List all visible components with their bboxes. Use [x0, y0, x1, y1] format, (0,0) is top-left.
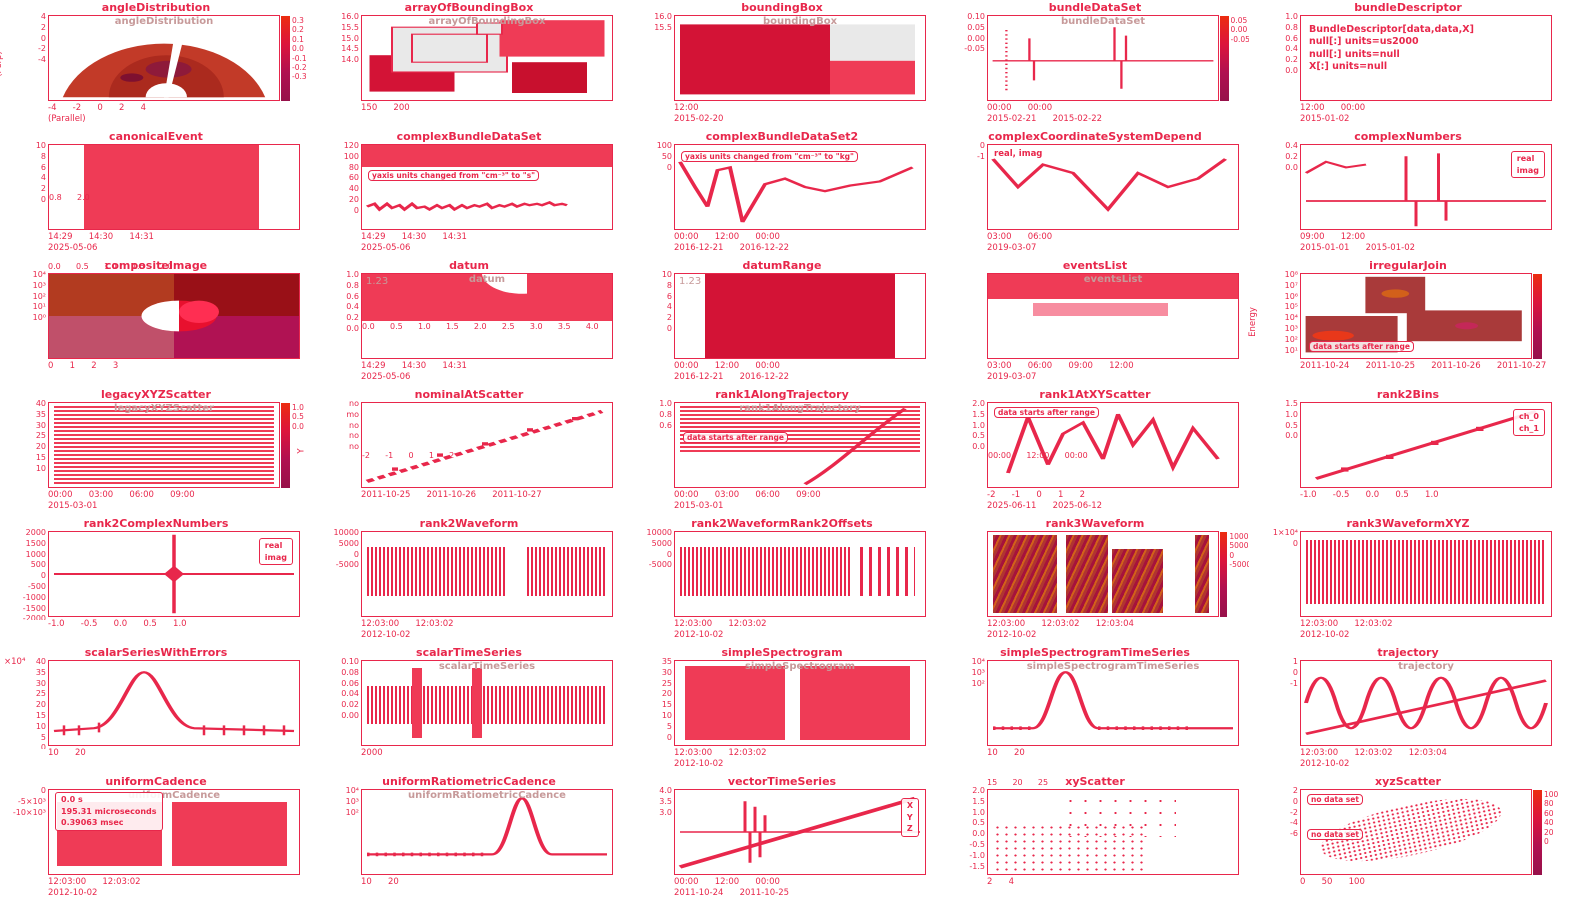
x-dates: 2012-10-02: [1300, 759, 1556, 769]
x-ticks: 10 20: [361, 877, 617, 887]
figure-bundleDataSet: bundleDataSet 0.10 0.05 0.00 -0.05 bundl…: [941, 2, 1249, 128]
figure-title: scalarSeriesWithErrors: [2, 646, 310, 659]
trajectory-curve: [675, 403, 925, 487]
figure-title: complexNumbers: [1254, 130, 1562, 143]
colorbar-gradient: [281, 403, 290, 488]
y-ticks: 120 100 80 60 40 20 0: [315, 141, 359, 233]
figure-title: simpleSpectrogram: [628, 646, 936, 659]
figure-title: boundingBox: [628, 1, 936, 14]
plot-area[interactable]: BundleDescriptor[data,data,X] null[:] un…: [1300, 15, 1552, 101]
figure-title: datumRange: [628, 259, 936, 272]
x-ticks: 14:29 14:30 14:31: [361, 361, 617, 371]
figure-title: xyzScatter: [1254, 775, 1562, 788]
x-dates: 2012-10-02: [1300, 630, 1556, 640]
plot-area[interactable]: [48, 273, 300, 359]
spectrogram-block-2: [800, 666, 910, 740]
y-ticks: 1 0 -1: [1254, 657, 1298, 749]
waveform-spectrogram-1: [993, 535, 1057, 612]
x-ticks: -1.0 -0.5 0.0 0.5 1.0: [48, 619, 304, 629]
x-dates: 2015-03-01: [674, 501, 930, 511]
ghost-title: simpleSpectrogramTimeSeries: [988, 661, 1238, 672]
x-ticks: 14:29 14:30 14:31: [361, 232, 617, 242]
ghost-title: bundleDataSet: [988, 16, 1218, 27]
plot-area[interactable]: data starts after range 00:00 12:00 00:0…: [987, 402, 1239, 488]
x-dates: 2015-01-01 2015-01-02: [1300, 243, 1556, 253]
datum-value: 1.23: [366, 276, 388, 287]
y-ticks: 0.10 0.08 0.06 0.04 0.02 0.00: [315, 657, 359, 749]
x-ticks: 03:00 06:00 09:00 12:00: [987, 361, 1243, 371]
figure-title: vectorTimeSeries: [628, 775, 936, 788]
x-ticks: -2 -1 0 1 2: [987, 490, 1243, 500]
plot-area[interactable]: real imag: [48, 531, 300, 617]
colorbar[interactable]: 0.05 0.00 -0.05: [1220, 16, 1249, 101]
y-ticks: 0.4 0.2 0.0: [1254, 141, 1298, 233]
figure-title: rank2WaveformRank2Offsets: [628, 517, 936, 530]
figure-title: eventsList: [941, 259, 1249, 272]
x-ticks: 12:03:00 12:03:02: [361, 619, 617, 629]
figure-title: rank1AtXYScatter: [941, 388, 1249, 401]
colorbar[interactable]: 100 80 60 40 20 0: [1533, 790, 1562, 875]
ghost-title: datum: [362, 274, 612, 285]
x-ticks-alt: -2 -1 0 1 2: [362, 451, 612, 460]
figure-title: complexBundleDataSet2: [628, 130, 936, 143]
plot-area[interactable]: [674, 531, 926, 617]
plot-area[interactable]: [1300, 531, 1552, 617]
figure-rank2WaveformRank2Offsets: rank2WaveformRank2Offsets 10000 5000 0 -…: [628, 518, 936, 644]
figure-xyzScatter: xyzScatter 2 0 -2 -4 -6 no data set no d…: [1254, 776, 1562, 902]
x-ticks: 150 200: [361, 103, 617, 113]
y-ticks: 2 0 -2 -4 -6: [1254, 786, 1298, 878]
y-ticks: 10000 5000 0 -5000: [628, 528, 672, 620]
colorbar-gradient: [1220, 16, 1229, 101]
plot-area[interactable]: datum 1.23 0.0 0.5 1.0 1.5 2.0 2.5 3.0 3…: [361, 273, 613, 359]
y-ticks: 1.5 1.0 0.5 0.0: [1254, 399, 1298, 491]
figure-rank1AtXYScatter: rank1AtXYScatter 2.0 1.5 1.0 0.5 0.0 dat…: [941, 389, 1249, 515]
y-ticks: 10 8 6 4 2 0: [2, 141, 46, 233]
plot-area[interactable]: 0.8 2.0: [48, 144, 300, 230]
x-ticks: 10 20: [987, 748, 1243, 758]
datum-notch: [362, 274, 612, 358]
figure-rank2Waveform: rank2Waveform 10000 5000 0 -5000 12:03:0…: [315, 518, 623, 644]
figure-title: arrayOfBoundingBox: [315, 1, 623, 14]
x-dates: 2012-10-02: [48, 888, 304, 898]
plot-area[interactable]: uniformRatiometricCadence: [361, 789, 613, 875]
y-ticks: 4 2 0 -2 -4: [2, 12, 46, 104]
colorbar-gradient: [281, 16, 290, 101]
figure-compositeImage: compositeImage 10⁴ 10³ 10² 10¹ 10⁰ 0.0 0…: [2, 260, 310, 386]
plot-area[interactable]: legacyXYZScatter: [48, 402, 280, 488]
legend[interactable]: ch_0 ch_1: [1513, 409, 1545, 436]
y-ticks: 0 -1: [941, 141, 985, 233]
x-ticks: 14:29 14:30 14:31: [48, 232, 304, 242]
y-ticks: 10 8 6 4 2 0: [628, 270, 672, 362]
figure-vectorTimeSeries: vectorTimeSeries 4.0 3.5 3.0 X Y Z 00:00…: [628, 776, 936, 902]
figure-title: uniformRatiometricCadence: [315, 775, 623, 788]
figure-rank2ComplexNumbers: rank2ComplexNumbers 2000 1500 1000 500 0…: [2, 518, 310, 644]
x-ticks: 12:03:00 12:03:02: [674, 619, 930, 629]
x-ticks: 00:00 00:00: [987, 103, 1243, 113]
cadence-legend[interactable]: 0.0 s 195.31 microseconds 0.39063 msec: [55, 792, 163, 831]
y-ticks: 2000 1500 1000 500 0 -500 -1000 -1500 -2…: [2, 528, 46, 620]
x-ticks: 12:03:00 12:03:02: [674, 748, 930, 758]
figure-angleDistribution: angleDistribution (Perp) 4 2 0 -2 -4 ang…: [2, 2, 310, 128]
figure-bundleDescriptor: bundleDescriptor 1.0 0.8 0.6 0.4 0.2 0.0…: [1254, 2, 1562, 128]
y-ticks: 40 35 30 25 20 15 10: [2, 399, 46, 491]
line-plot: [988, 16, 1218, 100]
ghost-title: eventsList: [988, 274, 1238, 285]
y-ticks: 0 -5×10³ -10×10³: [2, 786, 46, 878]
legend[interactable]: real imag: [259, 538, 293, 565]
plot-area[interactable]: yaxis units changed from "cm⁻³" to "s": [361, 144, 613, 230]
colorbar[interactable]: 1.0 0.5 0.0: [281, 403, 310, 488]
x-ticks: 10 20: [48, 748, 304, 758]
plot-area[interactable]: scalarTimeSeries: [361, 660, 613, 746]
x-dates: 2025-05-06: [361, 372, 617, 382]
y-ticks: 10⁴ 10³ 10²: [941, 657, 985, 749]
colorbar[interactable]: 10000 5000 0 -5000: [1220, 532, 1249, 617]
figure-scalarSeriesWithErrors: scalarSeriesWithErrors ×10⁴ 40 35 30 25 …: [2, 647, 310, 773]
x-dates: 2016-12-21 2016-12-22: [674, 243, 930, 253]
figure-title: rank3WaveformXYZ: [1254, 517, 1562, 530]
x-ticks: -1.0 -0.5 0.0 0.5 1.0: [1300, 490, 1556, 500]
plot-area[interactable]: trajectory: [1300, 660, 1552, 746]
plot-collage: angleDistribution (Perp) 4 2 0 -2 -4 ang…: [0, 0, 1569, 904]
waveform-spectrogram-4: [1195, 535, 1209, 612]
units-changed-annotation: yaxis units changed from "cm⁻³" to "kg": [681, 151, 858, 162]
colorbar[interactable]: 0.3 0.2 0.1 0.0 -0.1 -0.2 -0.3: [281, 16, 310, 101]
waveform-gap: [507, 532, 527, 616]
figure-title: bundleDescriptor: [1254, 1, 1562, 14]
plot-area[interactable]: real imag: [1300, 144, 1552, 230]
figure-title: rank3Waveform: [941, 517, 1249, 530]
x-ticks: 2 4: [987, 877, 1243, 887]
figure-complexBundleDataSet2: complexBundleDataSet2 100 50 0 yaxis uni…: [628, 131, 936, 257]
x-ticks: 12:03:00 12:03:02: [1300, 619, 1556, 629]
ghost-title: uniformRatiometricCadence: [362, 790, 612, 801]
figure-title: rank1AlongTrajectory: [628, 388, 936, 401]
figure-title: scalarTimeSeries: [315, 646, 623, 659]
figure-title: rank2ComplexNumbers: [2, 517, 310, 530]
y-ticks: 1.0 0.8 0.6 0.4 0.2 0.0: [315, 270, 359, 362]
plot-area[interactable]: simpleSpectrogram: [674, 660, 926, 746]
x-ticks: 12:00 00:00: [1300, 103, 1556, 113]
plot-area[interactable]: simpleSpectrogramTimeSeries: [987, 660, 1239, 746]
x-ticks: 2011-10-25 2011-10-26 2011-10-27: [361, 490, 617, 500]
figure-title: angleDistribution: [2, 1, 310, 14]
plot-area[interactable]: X Y Z: [674, 789, 926, 875]
y-ticks: 10⁴ 10³ 10² 10¹ 10⁰: [2, 270, 46, 362]
figure-arrayOfBoundingBox: arrayOfBoundingBox 16.0 15.5 15.0 14.5 1…: [315, 2, 623, 128]
x-dates: 2012-10-02: [987, 630, 1243, 640]
x-ticks: 12:03:00 12:03:02 12:03:04: [987, 619, 1243, 629]
x-ticks: 2011-10-24 2011-10-25 2011-10-26 2011-10…: [1300, 361, 1556, 371]
cadence-block-2: [172, 802, 287, 866]
figure-title: uniformCadence: [2, 775, 310, 788]
x-dates: 2019-03-07: [987, 243, 1243, 253]
range-band: [705, 274, 895, 358]
waveform: [367, 686, 607, 724]
y-ticks: 40 35 30 25 20 15 10 5 0: [2, 657, 46, 749]
x-ticks-alt: 00:00 12:00 00:00: [988, 451, 1238, 460]
composite-image: [49, 274, 299, 358]
units-changed-annotation: yaxis units changed from "cm⁻³" to "s": [368, 170, 539, 181]
x-ticks: 00:00 12:00 00:00: [674, 232, 930, 242]
x-dates: 2019-03-07: [987, 372, 1243, 382]
bounding-boxes: [362, 16, 612, 100]
figure-boundingBox: boundingBox 16.0 15.5 boundingBox 12:00 …: [628, 2, 936, 128]
series-label: real, imag: [994, 149, 1232, 159]
plot-area[interactable]: no data set no data set: [1300, 789, 1532, 875]
sparse-waveform: [860, 547, 915, 596]
plot-area[interactable]: uniformCadence 0.0 s 195.31 microseconds…: [48, 789, 300, 875]
colorbar-gradient: [1220, 532, 1227, 617]
descriptor-text: BundleDescriptor[data,data,X] null[:] un…: [1309, 24, 1547, 73]
figure-title: nominalAtScatter: [315, 388, 623, 401]
figure-title: irregularJoin: [1254, 259, 1562, 272]
waveform-spectrogram-2: [1066, 535, 1107, 612]
stripe-plot: [54, 406, 275, 483]
figure-irregularJoin: irregularJoin Energy 10⁸ 10⁷ 10⁶ 10⁵ 10⁴…: [1254, 260, 1562, 386]
tall-bar-2: [472, 668, 482, 739]
dense-waveform: [1306, 540, 1546, 604]
x-ticks: 12:03:00 12:03:02 12:03:04: [1300, 748, 1556, 758]
figure-title: legacyXYZScatter: [2, 388, 310, 401]
dense-waveform: [367, 547, 607, 596]
figure-canonicalEvent: canonicalEvent 10 8 6 4 2 0 0.8 2.0 14:2…: [2, 131, 310, 257]
x-dates: 2015-01-02: [1300, 114, 1556, 124]
noisy-line: [362, 145, 612, 229]
x-dates: 2025-05-06: [361, 243, 617, 253]
legend[interactable]: real imag: [1511, 151, 1545, 178]
plot-area[interactable]: [48, 660, 300, 746]
figure-title: trajectory: [1254, 646, 1562, 659]
x-dates: 2012-10-02: [674, 630, 930, 640]
y-ticks: 10⁸ 10⁷ 10⁶ 10⁵ 10⁴ 10³ 10² 10¹: [1254, 270, 1298, 362]
x-ticks-top: 15 20 25: [987, 778, 1219, 787]
figure-eventsList: eventsList eventsList 03:00 06:00 09:00 …: [941, 260, 1249, 386]
figure-uniformRatiometricCadence: uniformRatiometricCadence 10⁴ 10³ 10² un…: [315, 776, 623, 902]
figure-title: complexBundleDataSet: [315, 130, 623, 143]
scatter-sparse: [1063, 795, 1176, 837]
figure-complexCoordinateSystemDepend: complexCoordinateSystemDepend 0 -1 real,…: [941, 131, 1249, 257]
ghost-title: trajectory: [1301, 661, 1551, 672]
polar-heatmap: [49, 16, 279, 100]
figure-title: rank2Bins: [1254, 388, 1562, 401]
x-ticks: 00:00 12:00 00:00: [674, 877, 930, 887]
figure-scalarTimeSeries: scalarTimeSeries 0.10 0.08 0.06 0.04 0.0…: [315, 647, 623, 773]
x-ticks-top: 0.0 0.5 1.0 1.5 2.0: [48, 262, 280, 271]
plot-area[interactable]: yaxis units changed from "cm⁻³" to "kg": [674, 144, 926, 230]
y-ticks: 16.0 15.5 15.0 14.5 14.0: [315, 12, 359, 104]
data-starts-annotation: data starts after range: [1309, 341, 1414, 352]
y-ticks: 10000 5000 0 -5000: [315, 528, 359, 620]
x-dates: 2025-06-11 2025-06-12: [987, 501, 1243, 511]
figure-rank3Waveform: rank3Waveform 10000 5000 0 -5000 12:03:0…: [941, 518, 1249, 644]
x-ticks-alt: 0.8 2.0: [49, 193, 299, 202]
figure-title: rank2Waveform: [315, 517, 623, 530]
figure-nominalAtScatter: nominalAtScatter Y no mo no no no -2 -1 …: [315, 389, 623, 515]
no-data-annotation-1: no data set: [1307, 794, 1363, 805]
x-dates: 2015-02-20: [674, 114, 930, 124]
figure-simpleSpectrogramTimeSeries: simpleSpectrogramTimeSeries 10⁴ 10³ 10² …: [941, 647, 1249, 773]
plot-area[interactable]: 1.23: [674, 273, 926, 359]
x-ticks: 2000: [361, 748, 617, 758]
x-dates: 2016-12-21 2016-12-22: [674, 372, 930, 382]
figure-simpleSpectrogram: simpleSpectrogram 35 30 25 20 15 10 5 0 …: [628, 647, 936, 773]
plot-area[interactable]: boundingBox: [674, 15, 926, 101]
y-ticks: 2.0 1.5 1.0 0.5 0.0: [941, 399, 985, 491]
y-ticks: 16.0 15.5: [628, 12, 672, 104]
x-ticks: 00:00 03:00 06:00 09:00: [48, 490, 304, 500]
x-ticks: 00:00 12:00 00:00: [674, 361, 930, 371]
x-ticks: 09:00 12:00: [1300, 232, 1556, 242]
x-ticks: 0 1 2 3: [48, 361, 304, 371]
ghost-title: rank1AlongTrajectory: [675, 403, 925, 414]
x-dates: 2012-10-02: [674, 759, 930, 769]
plot-area[interactable]: eventsList: [987, 273, 1239, 359]
peak-with-errorbars: [49, 661, 299, 745]
nominal-scatter: [362, 403, 612, 487]
ratiometric-peak: [362, 790, 612, 874]
plot-area[interactable]: bundleDataSet: [987, 15, 1219, 101]
plot-area[interactable]: rank1AlongTrajectory data starts after r…: [674, 402, 926, 488]
figure-rank1AlongTrajectory: rank1AlongTrajectory 1.0 0.8 0.6 rank1Al…: [628, 389, 936, 515]
datum-range-value: 1.23: [679, 276, 701, 287]
colorbar-ticks: 0.3 0.2 0.1 0.0 -0.1 -0.2 -0.3: [292, 16, 307, 101]
peak-line: [988, 661, 1238, 745]
figure-datum: datum 1.0 0.8 0.6 0.4 0.2 0.0 datum 1.23…: [315, 260, 623, 386]
figure-trajectory: trajectory 1 0 -1 trajectory 12:03:00 12…: [1254, 647, 1562, 773]
ghost-title: angleDistribution: [49, 16, 279, 27]
figure-rank3WaveformXYZ: rank3WaveformXYZ 1×10⁴ 0 12:03:00 12:03:…: [1254, 518, 1562, 644]
figure-legacyXYZScatter: legacyXYZScatter 40 35 30 25 20 15 10 le…: [2, 389, 310, 515]
colorbar[interactable]: [1533, 274, 1562, 359]
data-starts-annotation: data starts after range: [994, 407, 1099, 418]
plot-area[interactable]: [987, 789, 1239, 875]
ghost-title: legacyXYZScatter: [49, 403, 279, 414]
x-axis-label: (Parallel): [48, 114, 304, 124]
tall-bar-1: [412, 668, 422, 739]
x-ticks: 00:00 03:00 06:00 09:00: [674, 490, 930, 500]
figure-xyScatter: xyScatter 2.0 1.5 1.0 0.5 0.0 -0.5 -1.0 …: [941, 776, 1249, 902]
figure-complexNumbers: complexNumbers 0.4 0.2 0.0 real imag 09:…: [1254, 131, 1562, 257]
colorbar-ticks: 0.05 0.00 -0.05: [1231, 16, 1249, 101]
event-interval: [84, 145, 259, 229]
plot-area[interactable]: [987, 531, 1219, 617]
y-ticks: 1×10⁴ 0: [1254, 528, 1298, 620]
x-ticks: 12:00: [674, 103, 930, 113]
y-ticks: no mo no no no: [315, 399, 359, 491]
x-ticks: -4 -2 0 2 4: [48, 103, 304, 113]
x-ticks: 03:00 06:00: [987, 232, 1243, 242]
x-dates: 2012-10-02: [361, 630, 617, 640]
y-ticks: 1.0 0.8 0.6: [628, 399, 672, 491]
y-ticks: 0.10 0.05 0.00 -0.05: [941, 12, 985, 104]
y-ticks: 10⁴ 10³ 10²: [315, 786, 359, 878]
colorbar-ticks: 1.0 0.5 0.0: [292, 403, 304, 488]
x-dates: 2015-03-01: [48, 501, 304, 511]
figure-title: simpleSpectrogramTimeSeries: [941, 646, 1249, 659]
figure-datumRange: datumRange 10 8 6 4 2 0 1.23 00:00 12:00…: [628, 260, 936, 386]
plot-area[interactable]: real, imag: [987, 144, 1239, 230]
colorbar-ticks: 100 80 60 40 20 0: [1544, 790, 1558, 875]
plot-area[interactable]: arrayOfBoundingBox: [361, 15, 613, 101]
figure-complexBundleDataSet: complexBundleDataSet 120 100 80 60 40 20…: [315, 131, 623, 257]
x-dates: 2025-05-06: [48, 243, 304, 253]
figure-title: complexCoordinateSystemDepend: [941, 130, 1249, 143]
colorbar-gradient: [1533, 274, 1542, 359]
x-ticks: 12:03:00 12:03:02: [48, 877, 304, 887]
x-dates: 2015-02-21 2015-02-22: [987, 114, 1243, 124]
waveform-spectrogram-3: [1112, 549, 1163, 613]
ghost-title: scalarTimeSeries: [362, 661, 612, 672]
spectrogram-block-1: [685, 666, 785, 740]
plot-area[interactable]: -2 -1 0 1 2: [361, 402, 613, 488]
sine-trajectory: [1301, 661, 1551, 745]
figure-title: bundleDataSet: [941, 1, 1249, 14]
plot-area[interactable]: ch_0 ch_1: [1300, 402, 1552, 488]
x-dates: 2011-10-24 2011-10-25: [674, 888, 930, 898]
bounding-box-image: [675, 16, 925, 100]
y-ticks: 35 30 25 20 15 10 5 0: [628, 657, 672, 749]
vector-lines: [675, 790, 925, 874]
plot-area[interactable]: angleDistribution: [48, 15, 280, 101]
ghost-title: boundingBox: [675, 16, 925, 27]
x-ticks: 0 50 100: [1300, 877, 1556, 887]
ghost-title: arrayOfBoundingBox: [362, 16, 612, 27]
y-ticks: 4.0 3.5 3.0: [628, 786, 672, 878]
no-data-annotation-2: no data set: [1307, 829, 1363, 840]
figure-uniformCadence: uniformCadence 0 -5×10³ -10×10³ uniformC…: [2, 776, 310, 902]
colorbar-ticks: 10000 5000 0 -5000: [1229, 532, 1249, 617]
figure-rank2Bins: rank2Bins 1.5 1.0 0.5 0.0 ch_0 ch_1 -1.0…: [1254, 389, 1562, 515]
dense-waveform: [680, 547, 850, 596]
x-ticks-alt: 0.0 0.5 1.0 1.5 2.0 2.5 3.0 3.5 4.0: [362, 322, 612, 331]
ghost-title: simpleSpectrogram: [675, 661, 925, 672]
y-ticks: 2.0 1.5 1.0 0.5 0.0 -0.5 -1.0 -1.5: [941, 786, 985, 878]
colorbar-gradient: [1533, 790, 1542, 875]
event-band-2: [1033, 303, 1168, 316]
plot-area[interactable]: data starts after range: [1300, 273, 1532, 359]
y-ticks: 100 50 0: [628, 141, 672, 233]
legend[interactable]: X Y Z: [901, 798, 919, 837]
y-ticks: 1.0 0.8 0.6 0.4 0.2 0.0: [1254, 12, 1298, 104]
figure-title: canonicalEvent: [2, 130, 310, 143]
plot-area[interactable]: [361, 531, 613, 617]
figure-title: datum: [315, 259, 623, 272]
data-starts-annotation: data starts after range: [683, 432, 788, 443]
